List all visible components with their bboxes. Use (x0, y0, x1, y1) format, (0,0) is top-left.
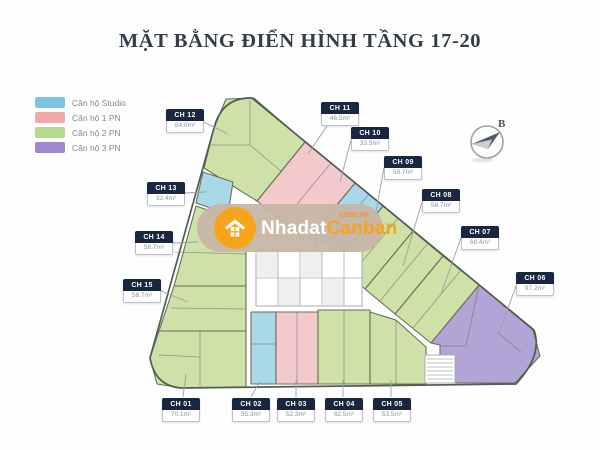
unit-code: CH 13 (147, 182, 185, 194)
unit-callout-CH-03: CH 0352.3m² (277, 398, 315, 422)
unit-callout-CH-15: CH 1558.7m² (123, 279, 161, 303)
unit-code: CH 05 (373, 398, 411, 410)
watermark-house-icon (214, 207, 256, 249)
unit-callout-CH-04: CH 0462.5m² (325, 398, 363, 422)
unit-code: CH 09 (384, 156, 422, 168)
floorplan-page: MẶT BẰNG ĐIỂN HÌNH TẦNG 17-20 Căn hộ Stu… (0, 0, 600, 450)
unit-code: CH 07 (461, 226, 499, 238)
unit-code: CH 01 (162, 398, 200, 410)
unit-callout-CH-10: CH 1033.5m² (351, 127, 389, 151)
unit-area: 58.7m² (384, 168, 422, 180)
watermark-brand-part2: Canban (327, 218, 398, 239)
unit-code: CH 11 (321, 102, 359, 114)
watermark-brand: NhadatCanban (261, 218, 397, 240)
unit-area: 58.7m² (135, 243, 173, 255)
unit-code: CH 12 (166, 109, 204, 121)
unit-callout-CH-06: CH 0697.2m² (516, 272, 554, 296)
unit-callout-CH-11: CH 1146.5m² (321, 102, 359, 126)
unit-callout-CH-05: CH 0553.5m² (373, 398, 411, 422)
unit-code: CH 08 (422, 189, 460, 201)
unit-callout-CH-09: CH 0958.7m² (384, 156, 422, 180)
unit-area: 68.4m² (461, 238, 499, 250)
unit-callout-CH-08: CH 0858.7m² (422, 189, 460, 213)
unit-callout-CH-14: CH 1458.7m² (135, 231, 173, 255)
unit-area: 97.2m² (516, 284, 554, 296)
unit-area: 62.5m² (325, 410, 363, 422)
unit-area: 35.3m² (232, 410, 270, 422)
unit-area: 33.5m² (351, 139, 389, 151)
unit-callout-CH-13: CH 1333.4m² (147, 182, 185, 206)
unit-code: CH 15 (123, 279, 161, 291)
compass-icon (462, 116, 514, 168)
unit-area: 33.4m² (147, 194, 185, 206)
unit-callout-CH-12: CH 1284.0m² (166, 109, 204, 133)
unit-callout-CH-07: CH 0768.4m² (461, 226, 499, 250)
unit-code: CH 06 (516, 272, 554, 284)
unit-callout-CH-02: CH 0235.3m² (232, 398, 270, 422)
unit-area: 58.7m² (123, 291, 161, 303)
unit-area: 52.3m² (277, 410, 315, 422)
watermark: NhadatCanban com.vn (197, 204, 383, 252)
unit-area: 70.1m² (162, 410, 200, 422)
unit-code: CH 10 (351, 127, 389, 139)
unit-area: 58.7m² (422, 201, 460, 213)
unit-area: 84.0m² (166, 121, 204, 133)
unit-code: CH 03 (277, 398, 315, 410)
compass-north-label: B (498, 118, 505, 130)
unit-code: CH 04 (325, 398, 363, 410)
unit-area: 53.5m² (373, 410, 411, 422)
watermark-domain: com.vn (339, 209, 369, 219)
unit-code: CH 14 (135, 231, 173, 243)
unit-callout-CH-01: CH 0170.1m² (162, 398, 200, 422)
unit-region-CH-02 (251, 312, 276, 384)
unit-area: 46.5m² (321, 114, 359, 126)
unit-region-CH-01 (150, 331, 246, 388)
unit-code: CH 02 (232, 398, 270, 410)
watermark-brand-part1: Nhadat (261, 218, 327, 239)
